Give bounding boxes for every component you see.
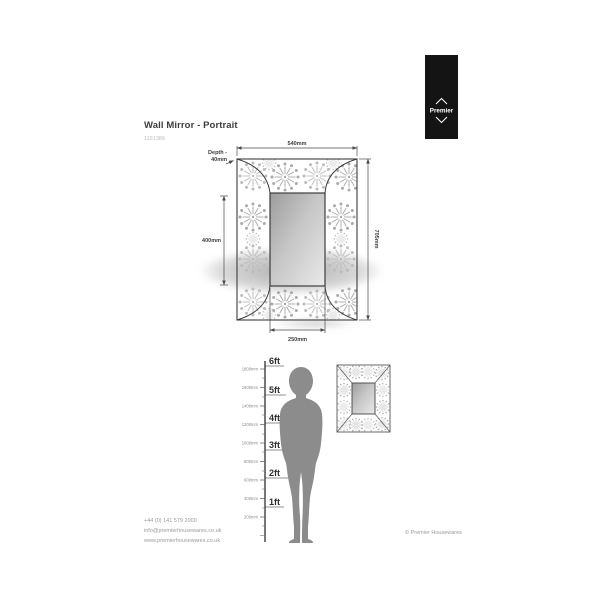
mm-label: 1000mm xyxy=(242,441,259,446)
dim-width xyxy=(237,146,357,156)
ft-label: 5ft xyxy=(269,385,280,395)
mm-label: 1200mm xyxy=(242,422,259,427)
mm-labels: 1800mm 1600mm 1400mm 1200mm 1000mm 800mm… xyxy=(242,367,259,520)
chevron-down-icon xyxy=(436,117,447,123)
mm-label: 1800mm xyxy=(242,367,259,372)
spec-sheet: Wall Mirror - Portrait 1101386 Premier xyxy=(0,0,600,600)
mm-label: 400mm xyxy=(244,496,258,501)
footer-email: info@premierhousewares.co.uk xyxy=(144,526,221,536)
chevron-up-icon xyxy=(436,99,447,105)
mm-label: 1600mm xyxy=(242,385,259,390)
mm-minor-ticks xyxy=(260,378,265,536)
mm-label: 1400mm xyxy=(242,404,259,409)
copyright: © Premier Housewares xyxy=(405,530,462,536)
thumbnail-glass xyxy=(352,383,375,414)
depth-label-line1: Depth - xyxy=(208,150,227,156)
mm-label: 600mm xyxy=(244,478,258,483)
footer-website: www.premierhousewares.co.uk xyxy=(144,536,221,546)
brand-label: Premier xyxy=(430,108,454,115)
dim-mirror-height xyxy=(220,196,228,285)
dim-width-label: 540mm xyxy=(288,141,307,147)
dim-height-label: 705mm xyxy=(373,230,379,249)
dim-mirror-width-label: 250mm xyxy=(288,337,307,343)
ft-label: 2ft xyxy=(269,468,280,478)
ft-label: 1ft xyxy=(269,497,280,507)
ft-label: 6ft xyxy=(269,356,280,366)
mm-major-ticks xyxy=(260,369,265,517)
page-title: Wall Mirror - Portrait xyxy=(144,120,238,131)
person-silhouette xyxy=(280,367,323,543)
ft-labels: 6ft 5ft 4ft 3ft 2ft 1ft xyxy=(269,356,280,507)
depth-arrow xyxy=(226,161,234,165)
footer-phone: +44 (0) 141 579 2000 xyxy=(144,516,221,526)
premier-logo: Premier xyxy=(425,55,458,139)
mirror-glass xyxy=(270,193,325,286)
footer-contact: +44 (0) 141 579 2000 info@premierhousewa… xyxy=(144,516,221,546)
height-scale: 1800mm 1600mm 1400mm 1200mm 1000mm 800mm… xyxy=(225,350,400,555)
mm-label: 800mm xyxy=(244,459,258,464)
mm-label: 200mm xyxy=(244,515,258,520)
ft-label: 4ft xyxy=(269,413,280,423)
ft-label: 3ft xyxy=(269,440,280,450)
premier-logo-graphic: Premier xyxy=(425,55,458,139)
depth-label-line2: 40mm xyxy=(211,157,227,163)
mirror-thumbnail xyxy=(337,365,391,433)
product-code: 1101386 xyxy=(144,136,165,142)
mirror-diagram: 540mm 705mm 400mm 250mm Depth - 40mm xyxy=(170,135,405,350)
dim-height xyxy=(359,159,371,320)
dim-mirror-height-label: 400mm xyxy=(202,238,221,244)
